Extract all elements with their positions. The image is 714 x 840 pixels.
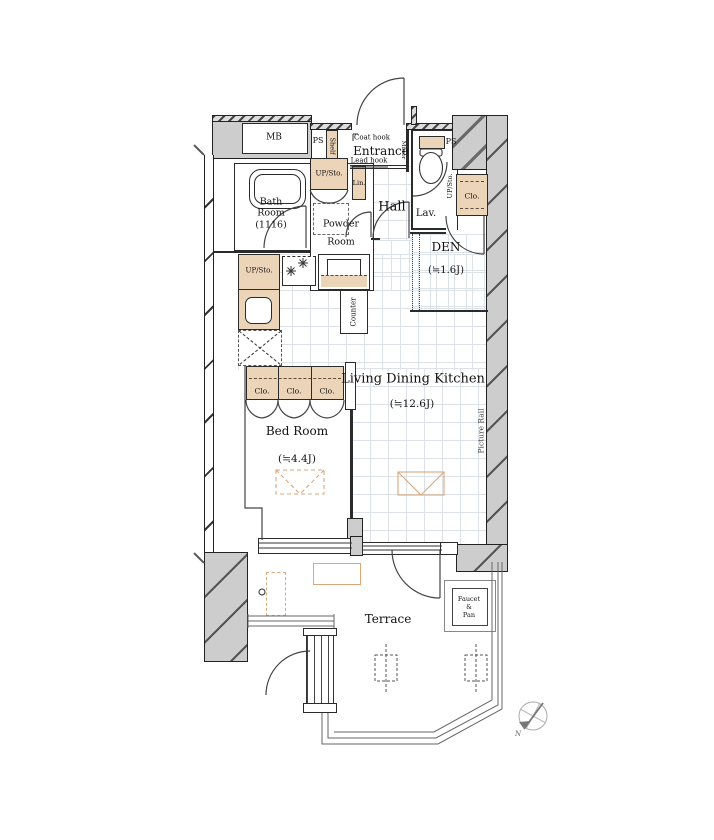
bedroom-futon-symbol [276, 470, 324, 494]
ldk-futon-fold [398, 472, 444, 495]
faucet-pan-label-3: Pan [463, 612, 475, 619]
terrace-drain-left [375, 655, 397, 681]
entrance-storage-label: UP/Sto. [316, 171, 343, 178]
toilet-bowl [420, 153, 443, 184]
ldk-futon-symbol [398, 472, 444, 495]
bath-label-3: (1116) [255, 220, 287, 230]
plan-linework-layer: N [0, 0, 714, 840]
terrace-faucet [259, 589, 265, 595]
faucet-pan-label-2: & [466, 604, 472, 611]
lav-label: Lav. [416, 209, 436, 219]
terrace-label: Terrace [365, 613, 412, 625]
floor-plan: N MB PS Shelf Coat hook Entrance Lead ho… [0, 0, 714, 840]
closet-label-2: Clo. [287, 387, 302, 395]
den-size-label: (≒1.6J) [428, 266, 464, 276]
ldk-label: Living Dining Kitchen [341, 373, 485, 386]
stove-burner-right [298, 258, 308, 268]
closet-bifold-doors [246, 400, 344, 418]
lav-storage-label: UP/Sto. [447, 174, 454, 199]
bath-label-2: Room [257, 208, 285, 218]
kitchen-storage-label: UP/Sto. [246, 268, 273, 275]
linen-label: Lin. [353, 180, 366, 187]
pipe-space-left-label: PS [313, 137, 324, 145]
ldk-size-label: (≒12.6J) [390, 399, 435, 410]
terrace-fence-inner [334, 562, 492, 732]
pipe-space-x [239, 331, 281, 365]
coat-hook-label: Coat hook [354, 135, 390, 142]
gate-door-swing [266, 651, 310, 695]
bath-label-1: Bath [260, 197, 283, 207]
lead-hook-label: Lead hook [351, 158, 388, 165]
bedroom-label: Bed Room [266, 425, 328, 437]
terrace-door-swing [392, 550, 440, 598]
den-label: DEN [432, 241, 461, 253]
closet-label-1: Clo. [255, 387, 270, 395]
terrace-drain-right [465, 655, 487, 681]
pipe-space-right-label: PS [446, 138, 457, 146]
hall-label: Hall [378, 201, 405, 214]
faucet-pan-label-1: Faucet [458, 596, 480, 603]
compass-north-label: N [514, 730, 522, 738]
terrace-left-railing [248, 614, 334, 628]
meter-box-label: MB [266, 134, 282, 143]
entrance-door-swing [357, 78, 404, 125]
lav-closet-label: Clo. [465, 192, 480, 200]
window-lines [258, 543, 442, 550]
bedroom-size-label: (≒4.4J) [278, 454, 316, 465]
powder-label-1: Powder [323, 219, 359, 229]
stove-burner-left [286, 266, 296, 276]
picture-rail-label: Picture Rail [477, 409, 485, 454]
mirror-label: Mirror [399, 141, 405, 160]
powder-label-2: Room [327, 237, 355, 247]
bedroom-futon-fold [276, 470, 324, 494]
compass: N [514, 702, 547, 738]
counter-label: Counter [351, 298, 358, 327]
entrance-storage-doors [310, 190, 348, 203]
terrace-fence-mid [328, 562, 498, 738]
closet-label-3: Clo. [320, 387, 335, 395]
shelf-label: Shelf [329, 138, 336, 155]
